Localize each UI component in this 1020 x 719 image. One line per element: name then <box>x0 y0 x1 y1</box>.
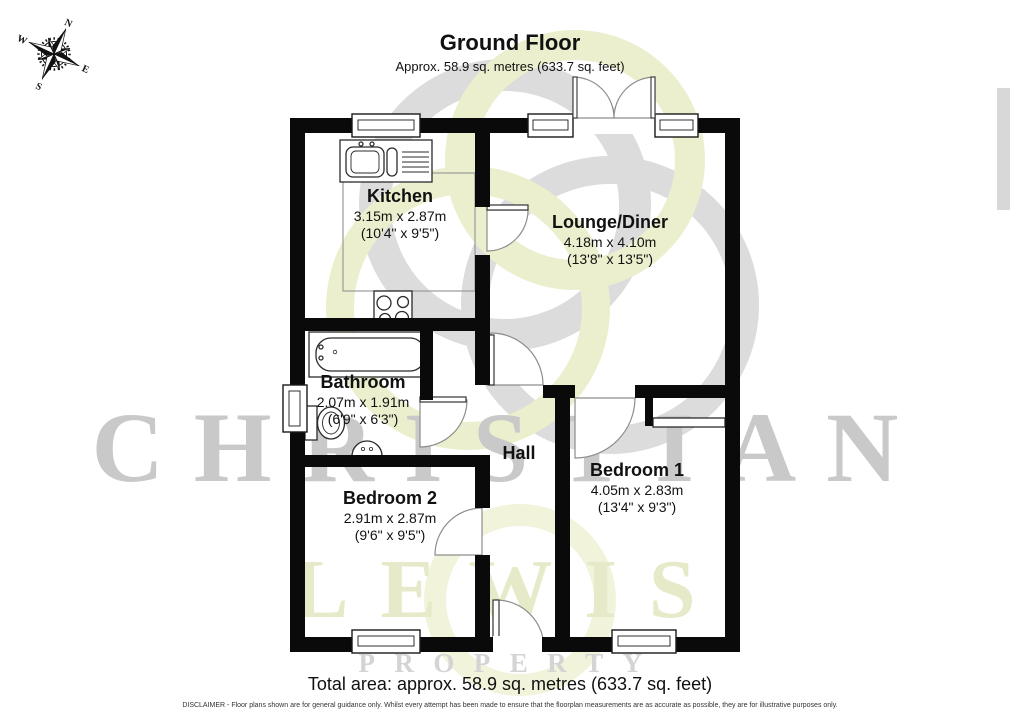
total-area-text: Total area: approx. 58.9 sq. metres (633… <box>0 674 1020 695</box>
lounge-name: Lounge/Diner <box>520 212 700 234</box>
wall-bedroom1-top-left <box>543 385 575 398</box>
kitchen-dims-imperial: (10'4" x 9'5") <box>330 225 470 242</box>
kitchen-window <box>352 114 420 137</box>
lounge-window-left <box>528 114 573 137</box>
bathroom-dims-metric: 2.07m x 1.91m <box>288 394 438 411</box>
patio-door-leaf-right <box>651 77 655 118</box>
bedroom1-name: Bedroom 1 <box>557 460 717 482</box>
patio-door-leaf-left <box>573 77 577 118</box>
floorplan-page: CHRISTIAN LEWIS PROPERTY <box>0 0 1020 719</box>
compass-south-label: S <box>34 81 44 94</box>
bathroom-name: Bathroom <box>288 372 438 394</box>
bathroom-dims-imperial: (6'9" x 6'3") <box>288 411 438 428</box>
page-title: Ground Floor <box>0 30 1020 56</box>
lounge-dims-metric: 4.18m x 4.10m <box>520 234 700 251</box>
patio-door-gap <box>573 117 655 134</box>
wall-bathroom-bedroom2 <box>305 455 490 467</box>
page-subtitle: Approx. 58.9 sq. metres (633.7 sq. feet) <box>0 59 1020 74</box>
room-label-kitchen: Kitchen 3.15m x 2.87m (10'4" x 9'5") <box>330 186 470 242</box>
lounge-hall-door-swing <box>491 333 543 385</box>
bedroom2-dims-imperial: (9'6" x 9'5") <box>310 527 470 544</box>
wall-kitchen-lounge-lower <box>475 255 490 385</box>
patio-door-swing-left <box>573 77 614 118</box>
wall-hall-bedroom2-lower <box>475 555 490 637</box>
cupboard-front <box>653 418 725 427</box>
bedroom2-dims-metric: 2.91m x 2.87m <box>310 510 470 527</box>
room-label-bedroom2: Bedroom 2 2.91m x 2.87m (9'6" x 9'5") <box>310 488 470 544</box>
header: Ground Floor Approx. 58.9 sq. metres (63… <box>0 30 1020 74</box>
patio-door-swing-right <box>614 77 655 118</box>
basin <box>352 441 382 456</box>
wall-kitchen-bathroom <box>305 318 475 331</box>
room-label-bedroom1: Bedroom 1 4.05m x 2.83m (13'4" x 9'3") <box>557 460 717 516</box>
bedroom2-window <box>352 630 420 653</box>
lounge-dims-imperial: (13'8" x 13'5") <box>520 251 700 268</box>
room-label-bathroom: Bathroom 2.07m x 1.91m (6'9" x 6'3") <box>288 372 438 428</box>
door-swings <box>420 210 635 648</box>
bedroom1-dims-imperial: (13'4" x 9'3") <box>557 499 717 516</box>
wall-kitchen-lounge-upper <box>475 133 490 207</box>
disclaimer-text: DISCLAIMER - Floor plans shown are for g… <box>0 702 1020 709</box>
wall-right <box>725 118 740 652</box>
bedroom2-name: Bedroom 2 <box>310 488 470 510</box>
wall-bedroom1-top-right <box>635 385 725 398</box>
kitchen-dims-metric: 3.15m x 2.87m <box>330 208 470 225</box>
bedroom1-dims-metric: 4.05m x 2.83m <box>557 482 717 499</box>
floorplan-drawing <box>0 0 1020 719</box>
bedroom1-door-swing <box>575 398 635 458</box>
kitchen-door-leaf <box>487 205 528 210</box>
bedroom1-window <box>612 630 676 653</box>
front-door-gap <box>493 636 542 653</box>
bathtub <box>309 332 432 377</box>
room-label-lounge: Lounge/Diner 4.18m x 4.10m (13'8" x 13'5… <box>520 212 700 268</box>
kitchen-name: Kitchen <box>330 186 470 208</box>
compass-north-label: N <box>63 17 75 30</box>
kitchen-sink <box>340 140 432 182</box>
patio-double-doors <box>573 77 655 118</box>
wall-hall-bedroom2-upper <box>475 467 490 508</box>
room-label-hall: Hall <box>479 443 559 465</box>
lounge-window-right <box>655 114 698 137</box>
wall-hall-bedroom1 <box>555 398 570 637</box>
hall-name: Hall <box>479 443 559 465</box>
wall-cupboard-stub <box>645 398 653 426</box>
